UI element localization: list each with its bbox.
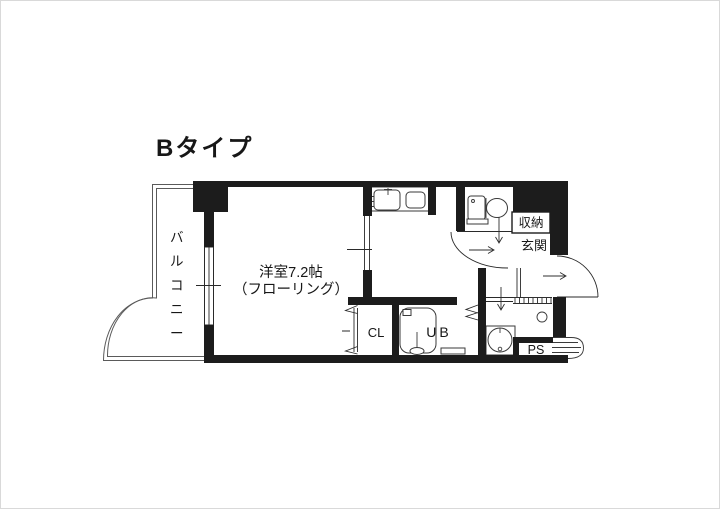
entrance-step-hatch bbox=[513, 298, 552, 304]
washroom-door bbox=[486, 268, 521, 302]
pipe-space-label: PS bbox=[528, 343, 545, 357]
toilet-door-arrow bbox=[496, 217, 503, 243]
toilet-fixture bbox=[467, 196, 508, 224]
closet-folding-door bbox=[342, 306, 358, 355]
closet-label: CL bbox=[368, 325, 385, 340]
wall-ps-left bbox=[513, 337, 519, 363]
balcony-outline bbox=[104, 185, 205, 361]
kitchen-sink bbox=[374, 190, 400, 210]
bath-folding-door bbox=[466, 305, 478, 320]
floorplan-page: Bタイプ バルコニー 洋室7.2帖 （フローリング） CL UB 収納 玄関 P… bbox=[0, 0, 720, 509]
wall-ub-washroom-divider bbox=[478, 268, 486, 357]
wall-pillar-topleft bbox=[193, 181, 228, 212]
wall-toilet-west bbox=[456, 185, 465, 231]
hall-arrow bbox=[469, 247, 494, 254]
plan-title: Bタイプ bbox=[156, 135, 253, 162]
unit-bath-label: UB bbox=[426, 324, 451, 340]
wall-room-east-upper bbox=[363, 185, 372, 216]
balcony-label: バルコニー bbox=[170, 230, 184, 341]
kitchen-counter bbox=[370, 187, 431, 211]
entrance-door bbox=[557, 256, 598, 297]
wall-cl-ub-divider bbox=[392, 303, 399, 357]
bath-step bbox=[441, 348, 465, 354]
wall-west-upper bbox=[204, 212, 214, 247]
main-room-label-line2: （フローリング） bbox=[233, 281, 349, 298]
wall-mid-horizontal bbox=[348, 297, 457, 305]
floorplan-drawing: Bタイプ バルコニー 洋室7.2帖 （フローリング） CL UB 収納 玄関 P… bbox=[0, 0, 720, 509]
wall-top bbox=[193, 181, 568, 187]
entrance-label: 玄関 bbox=[521, 238, 547, 253]
kitchen-stove bbox=[406, 192, 425, 208]
balcony-window bbox=[196, 247, 221, 325]
washer-drain-icon bbox=[537, 312, 547, 322]
wall-east-upper bbox=[550, 183, 568, 255]
storage-label: 収納 bbox=[518, 216, 543, 230]
washbasin bbox=[486, 326, 515, 355]
room-kitchen-sliding-door bbox=[347, 216, 372, 270]
washroom-door-arrow bbox=[498, 287, 505, 310]
wall-east-lower bbox=[553, 297, 566, 337]
entrance-door-arrow bbox=[543, 273, 566, 280]
main-room-label-line1: 洋室7.2帖 bbox=[259, 264, 323, 281]
wall-kitchen-stub bbox=[428, 185, 436, 215]
